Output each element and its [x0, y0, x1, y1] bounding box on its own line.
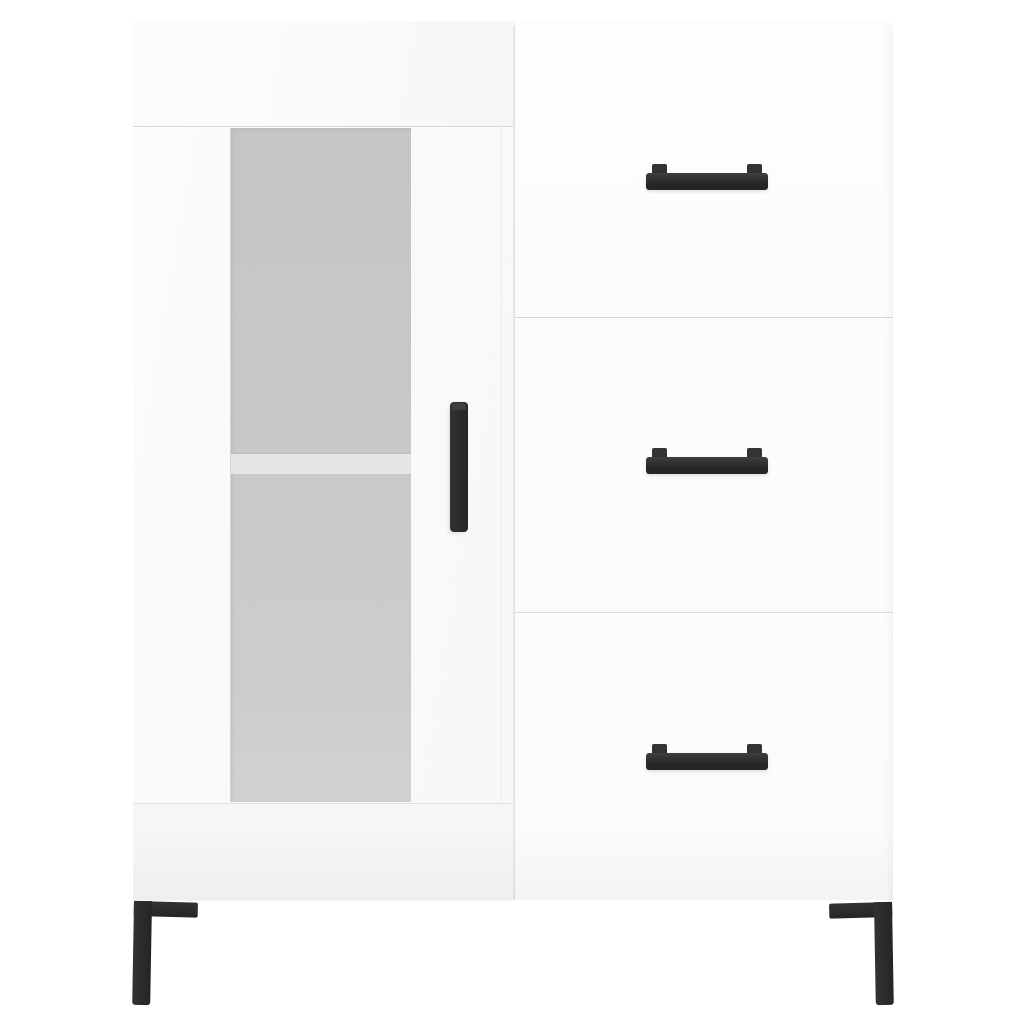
drawer-section	[515, 21, 893, 900]
left-leg-post	[132, 901, 152, 1005]
handle-bar	[646, 457, 768, 474]
drawer-bottom	[515, 612, 893, 901]
base-panel	[133, 803, 513, 901]
glass-door	[133, 127, 513, 803]
door-edge-seam	[501, 127, 502, 803]
door-handle-cap	[452, 403, 466, 410]
drawer-handle	[646, 164, 768, 190]
door-handle	[450, 402, 468, 532]
drawer-top	[515, 21, 893, 317]
handle-bar	[646, 753, 768, 770]
sideboard-cabinet	[133, 21, 893, 900]
drawer-middle	[515, 317, 893, 613]
drawer-handle	[646, 448, 768, 474]
shelf-edge	[231, 452, 411, 474]
cabinet-top-panel	[133, 21, 513, 127]
product-photo	[0, 0, 1024, 1024]
right-leg-post	[874, 902, 894, 1005]
door-section	[133, 21, 513, 900]
drawer-handle	[646, 744, 768, 770]
glass-panel	[230, 128, 411, 802]
handle-bar	[646, 173, 768, 190]
